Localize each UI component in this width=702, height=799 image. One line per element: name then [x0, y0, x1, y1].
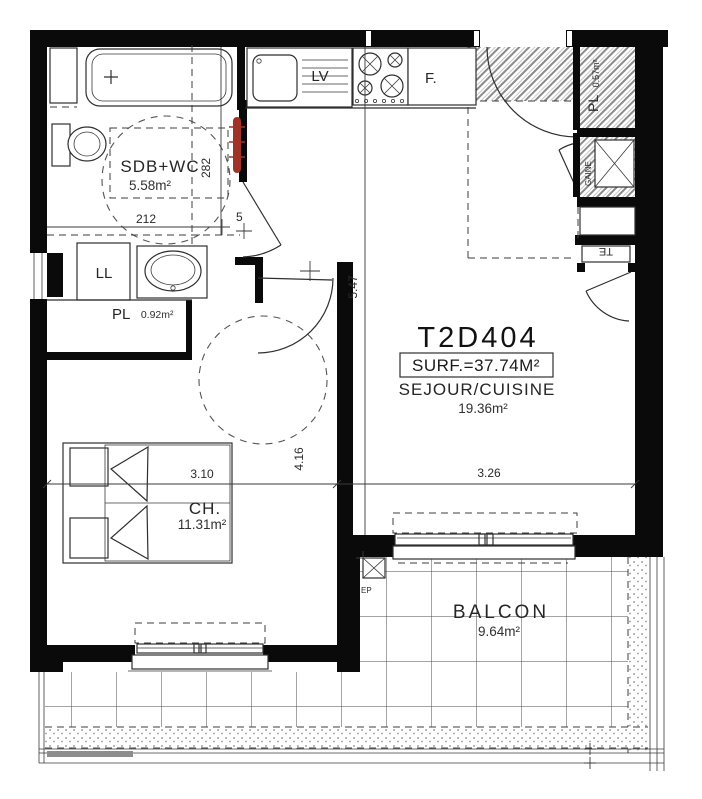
balcony-label: BALCON [453, 602, 549, 623]
bedroom-window [128, 644, 272, 671]
nightstand-bottom [70, 518, 108, 558]
floor-plan-svg: PL 0.57m² GAINE [0, 0, 702, 799]
bedroom: CH. 11.31m² [63, 443, 272, 671]
title-block: T2D404 SURF.=37.74M² SEJOUR/CUISINE 19.3… [399, 322, 556, 416]
fridge [408, 48, 476, 105]
bathroom-label: SDB+WC [120, 157, 199, 176]
electrical-panel: TE [578, 207, 635, 262]
dim-sdb-width: 212 [136, 212, 156, 226]
dim-hall-height: 5.47 [346, 275, 360, 299]
unit-surface: SURF.=37.74M² [412, 356, 540, 375]
unit-id: T2D404 [417, 322, 538, 354]
turning-circle-hall [199, 316, 327, 444]
french-window [393, 513, 577, 563]
bathroom-area: 5.58m² [129, 178, 172, 193]
hall-closet-label: PL 0.92m² [112, 306, 174, 323]
hall-door [258, 278, 333, 353]
toilet-tank [52, 124, 70, 166]
dim-sejour-width: 3.26 [477, 466, 501, 480]
duct-label: GAINE [584, 161, 593, 186]
nightstand-top [70, 448, 108, 486]
bedroom-area: 11.31m² [178, 517, 227, 532]
entry-shelf [580, 207, 635, 235]
dishwasher-label: LV [311, 68, 328, 85]
bathroom-door [243, 182, 281, 257]
sink-basin [253, 55, 297, 101]
rain-drain-label: EP [361, 586, 372, 595]
electrical-panel-label: TE [599, 245, 613, 257]
radiator [233, 117, 241, 173]
gravel-strip-bottom [45, 727, 648, 748]
dim-sdb-height: 282 [199, 158, 213, 178]
kitchen: LV F. [245, 48, 476, 108]
sejour-area: 19.36m² [458, 401, 508, 416]
fridge-label: F. [425, 70, 437, 87]
threshold-bar [47, 751, 133, 757]
bedroom-label: CH. [189, 499, 221, 518]
dim-bedroom-width: 3.10 [190, 467, 214, 481]
dim-bedroom-height: 4.16 [292, 447, 306, 471]
duct-shaft: GAINE [559, 137, 635, 199]
wall-niche [50, 48, 77, 103]
balcony-area: 9.64m² [478, 624, 521, 639]
floor-plan: PL 0.57m² GAINE [0, 0, 702, 799]
dim-door: 5 [236, 210, 243, 224]
washing-machine-label: LL [96, 265, 113, 282]
entry-closet: PL 0.57m² [577, 47, 635, 128]
gravel-strip-right [628, 557, 648, 753]
sejour-label: SEJOUR/CUISINE [399, 380, 556, 399]
sejour-door-from-entry [586, 272, 631, 321]
